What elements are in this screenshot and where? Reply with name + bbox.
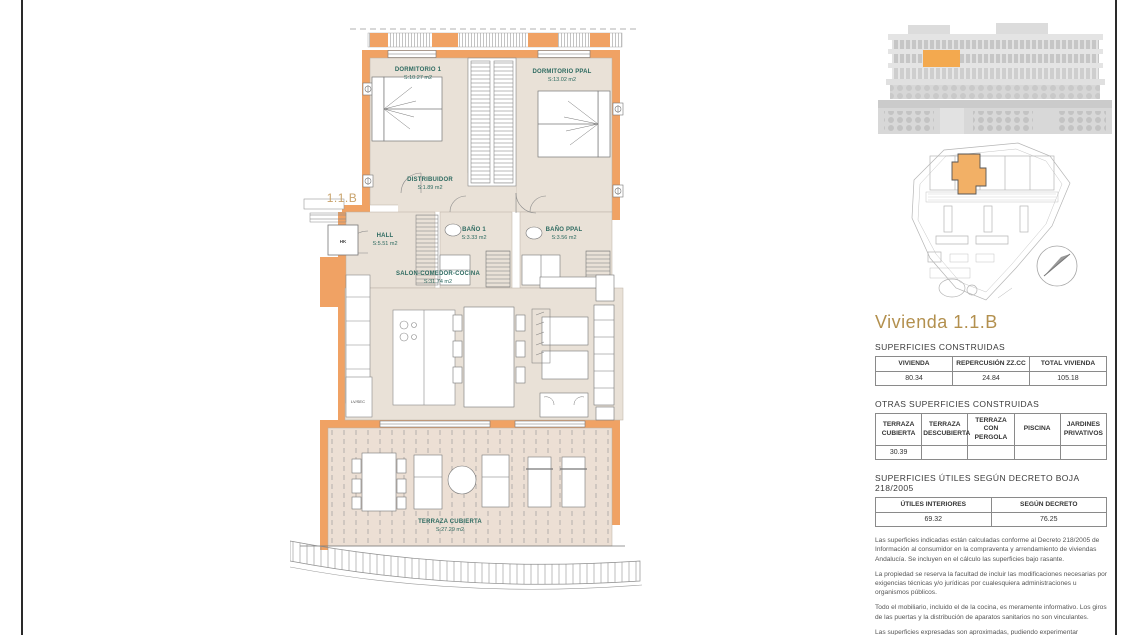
section-title-other: OTRAS SUPERFICIES CONSTRUIDAS: [875, 399, 1107, 409]
room-name: TERRAZA CUBIERTA: [418, 519, 482, 525]
disclaimer-paragraph: La propiedad se reserva la facultad de i…: [875, 570, 1107, 598]
ground-lines: [290, 541, 642, 589]
unit-title: Vivienda 1.1.B: [875, 312, 1107, 333]
cell-value: 69.32: [876, 513, 992, 527]
section-title-constructed: SUPERFICIES CONSTRUIDAS: [875, 342, 1107, 352]
floor-plan: HK LV/SEC DORMITORIO: [290, 25, 660, 610]
room-area: S:27.29 m2: [436, 527, 464, 533]
compass: [1037, 246, 1077, 286]
room-area: S:10.27 m2: [404, 75, 432, 81]
col-header: TERRAZA DESCUBIERTA: [922, 414, 968, 446]
table-otras-superficies: TERRAZA CUBIERTA TERRAZA DESCUBIERTA TER…: [875, 413, 1107, 460]
cell-value: [968, 445, 1014, 459]
cell-value: 30.39: [876, 445, 922, 459]
room-name: DORMITORIO 1: [395, 67, 442, 73]
col-header: TERRAZA CON PERGOLA: [968, 414, 1014, 446]
cell-value: 105.18: [1030, 372, 1107, 386]
hk-label: HK: [340, 239, 347, 244]
col-header: ÚTILES INTERIORES: [876, 497, 992, 512]
dining-set: [453, 307, 525, 407]
highlighted-unit-siteplan: [952, 154, 986, 194]
col-header: TOTAL VIVIENDA: [1030, 357, 1107, 372]
room-area: S:13.02 m2: [548, 77, 576, 83]
sheet-border-right: [1115, 0, 1117, 635]
sheet-border-left: [21, 0, 23, 635]
elevation-drawing: [878, 23, 1112, 134]
room-area: S:5.51 m2: [372, 241, 397, 247]
room-area: S:1.89 m2: [417, 185, 442, 191]
col-header: TERRAZA CUBIERTA: [876, 414, 922, 446]
table-superficies-construidas: VIVIENDA REPERCUSIÓN ZZ.CC TOTAL VIVIEND…: [875, 356, 1107, 386]
site-plan: [900, 138, 1095, 310]
col-header: SEGÚN DECRETO: [991, 497, 1107, 512]
cell-value: 76.25: [991, 513, 1107, 527]
disclaimer-paragraph: Las superficies expresadas son aproximad…: [875, 628, 1107, 635]
building-elevation: [878, 12, 1112, 135]
info-panel: Vivienda 1.1.B SUPERFICIES CONSTRUIDAS V…: [875, 312, 1107, 635]
table-superficies-utiles: ÚTILES INTERIORES SEGÚN DECRETO 69.32 76…: [875, 497, 1107, 527]
col-header: JARDINES PRIVATIVOS: [1060, 414, 1106, 446]
wardrobes: [468, 58, 516, 186]
legal-disclaimers: Las superficies indicadas están calculad…: [875, 536, 1107, 635]
col-header: REPERCUSIÓN ZZ.CC: [953, 357, 1030, 372]
room-name: SALON-COMEDOR-COCINA: [396, 271, 480, 277]
bed-dormitorio-1: [372, 77, 442, 141]
site-plan-drawing: [912, 143, 1070, 300]
adjacent-structure-hatch: [350, 29, 640, 47]
brochure-sheet: HK LV/SEC DORMITORIO: [0, 0, 1130, 635]
cell-value: [922, 445, 968, 459]
room-name: BAÑO 1: [462, 226, 486, 233]
section-title-utiles: SUPERFICIES ÚTILES SEGÚN DECRETO BOJA 21…: [875, 473, 1107, 493]
cell-value: 80.34: [876, 372, 953, 386]
room-name: DISTRIBUIDOR: [407, 177, 453, 183]
disclaimer-paragraph: Todo el mobiliario, incluido el de la co…: [875, 603, 1107, 621]
room-name: DORMITORIO PPAL: [532, 69, 591, 75]
room-area: S:31.74 m2: [424, 279, 452, 285]
room-area: S:3.33 m2: [461, 235, 486, 241]
lvsec-label: LV/SEC: [351, 399, 365, 404]
cell-value: [1014, 445, 1060, 459]
room-name: HALL: [377, 233, 394, 239]
unit-number-label: 1.1.B: [327, 191, 358, 205]
col-header: VIVIENDA: [876, 357, 953, 372]
highlighted-unit-elevation: [923, 50, 960, 67]
disclaimer-paragraph: Las superficies indicadas están calculad…: [875, 536, 1107, 564]
room-name: BAÑO PPAL: [546, 226, 583, 233]
col-header: PISCINA: [1014, 414, 1060, 446]
cell-value: [1060, 445, 1106, 459]
bed-dormitorio-ppal: [538, 91, 610, 157]
room-area: S:3.56 m2: [551, 235, 576, 241]
cell-value: 24.84: [953, 372, 1030, 386]
